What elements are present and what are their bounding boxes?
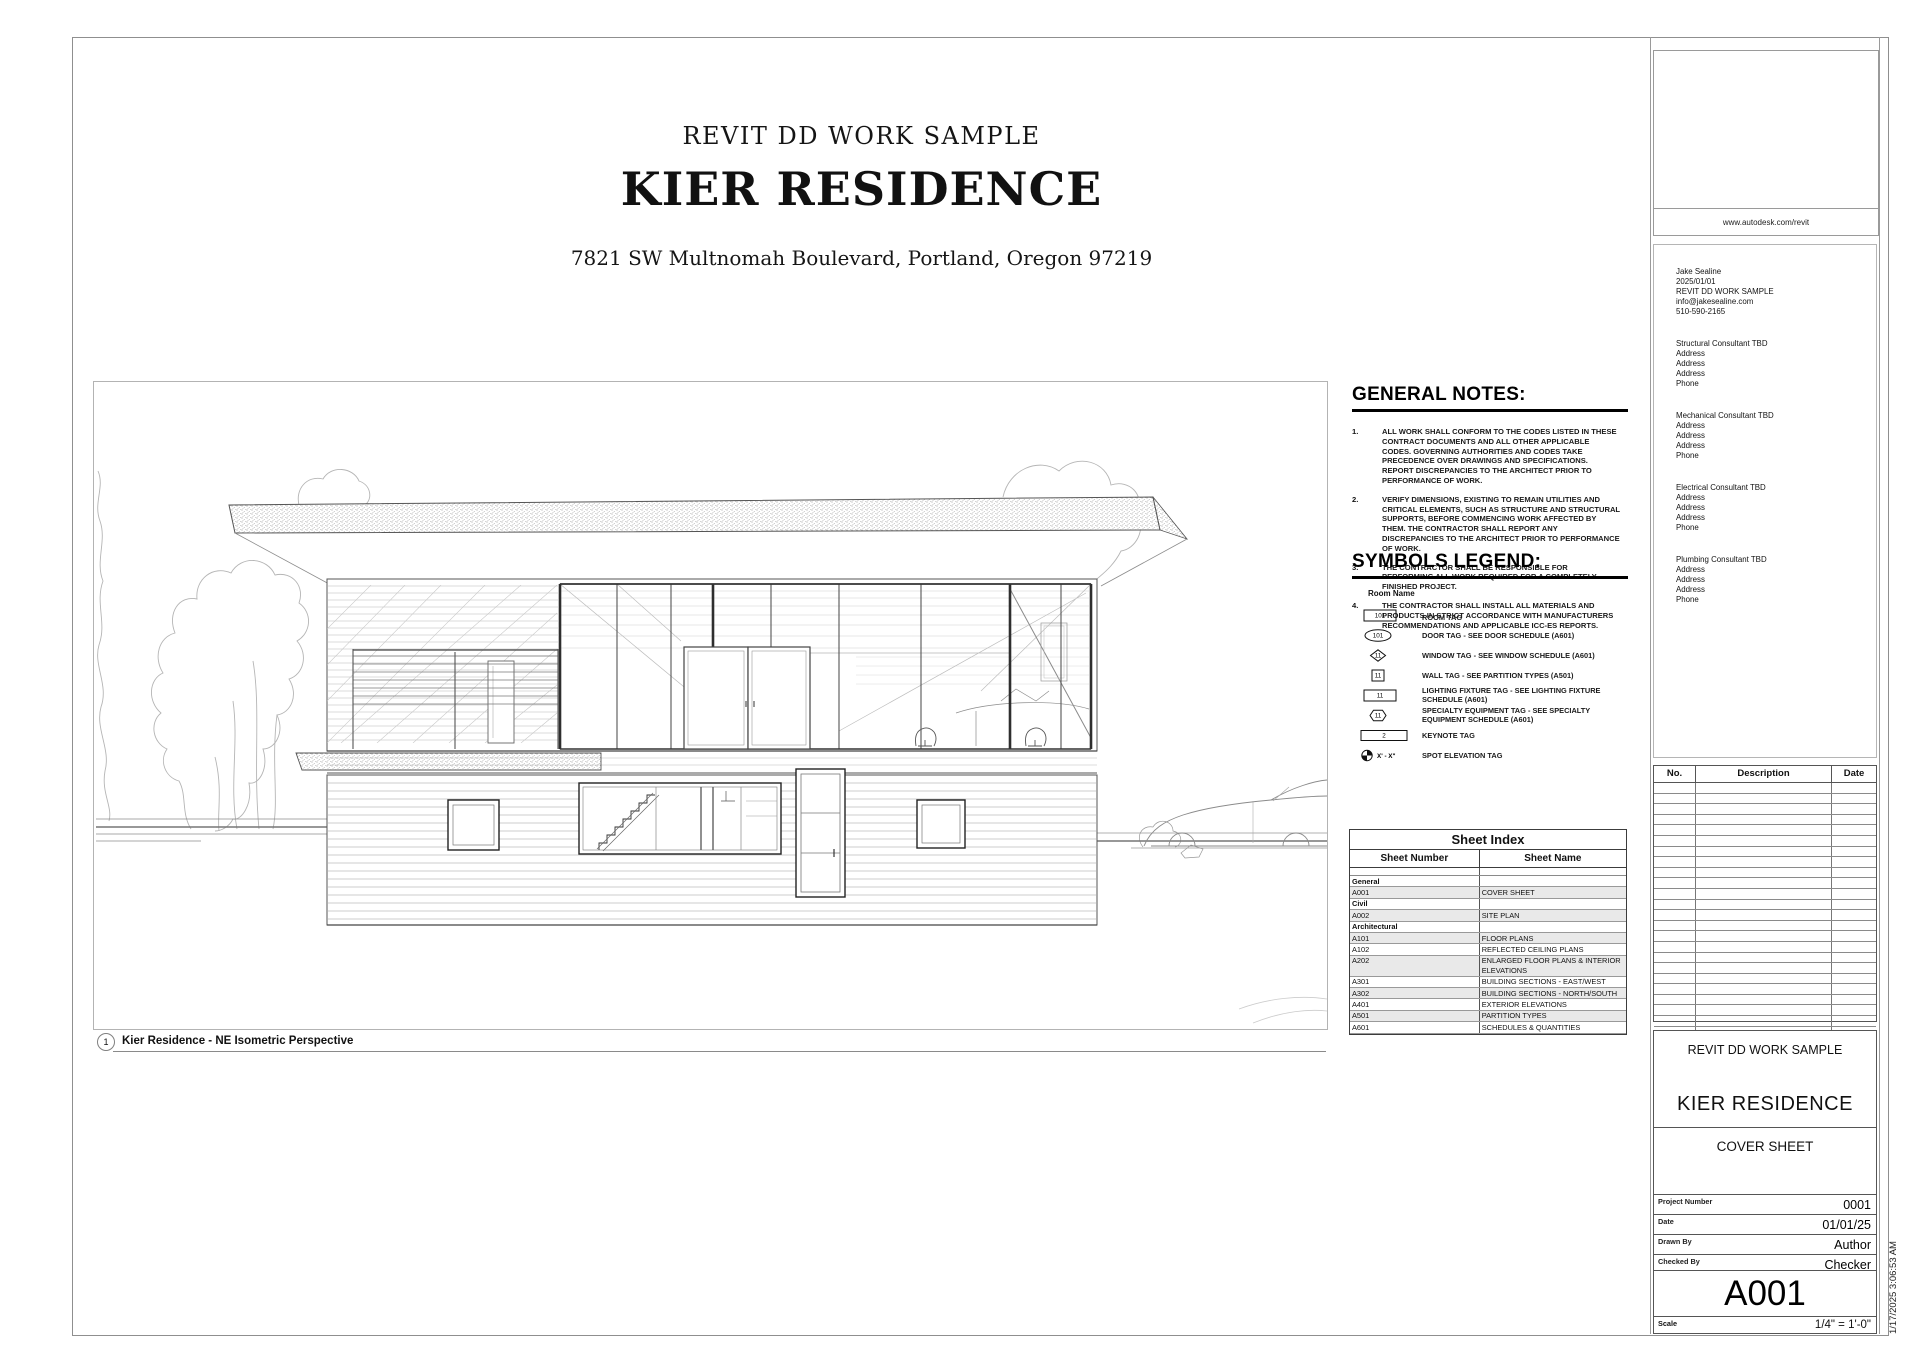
sheet-number-cell: A001: [1350, 887, 1480, 897]
svg-text:11: 11: [1377, 692, 1384, 699]
sheet-name-cell: REFLECTED CEILING PLANS: [1480, 944, 1626, 954]
sheet-index-row: A302BUILDING SECTIONS - NORTH/SOUTH: [1350, 988, 1626, 999]
legend-item: 101DOOR TAG - SEE DOOR SCHEDULE (A601): [1360, 625, 1628, 645]
title-block: REVIT DD WORK SAMPLE KIER RESIDENCE COVE…: [1653, 1030, 1877, 1334]
sheet-name-cell: PARTITION TYPES: [1480, 1011, 1626, 1021]
legend-item: 101ROOM TAG: [1360, 592, 1628, 625]
legend-label: DOOR TAG - SEE DOOR SCHEDULE (A601): [1422, 631, 1574, 640]
sheet-index-table: Sheet Index Sheet Number Sheet Name Gene…: [1349, 829, 1627, 1035]
consultant-line: Address: [1676, 493, 1876, 503]
sheet-name-cell: SCHEDULES & QUANTITIES: [1480, 1022, 1626, 1032]
sheet-index-spacer: [1350, 868, 1626, 876]
revision-table-header: No. Description Date: [1654, 766, 1876, 783]
consultant-line: Address: [1676, 431, 1876, 441]
sheet-index-row: A001COVER SHEET: [1350, 887, 1626, 898]
stair-window: [579, 783, 781, 854]
note-text: ALL WORK SHALL CONFORM TO THE CODES LIST…: [1382, 427, 1620, 486]
consultant-title: Electrical Consultant TBD: [1676, 483, 1876, 493]
revision-row: [1654, 953, 1876, 964]
balcony-slab: [296, 753, 601, 770]
symbols-legend-list: 101ROOM TAG101DOOR TAG - SEE DOOR SCHEDU…: [1360, 592, 1628, 765]
sheet-number-cell: A302: [1350, 988, 1480, 998]
sheet-number-column-header: Sheet Number: [1350, 850, 1480, 867]
titleblock-field: Project Number0001: [1654, 1194, 1876, 1214]
sheet-name-cell: BUILDING SECTIONS - NORTH/SOUTH: [1480, 988, 1626, 998]
sheet-index-row: A101FLOOR PLANS: [1350, 933, 1626, 944]
ellipse-tag-symbol: 101: [1360, 629, 1422, 642]
legend-label: SPOT ELEVATION TAG: [1422, 751, 1502, 760]
legend-item: 2KEYNOTE TAG: [1360, 725, 1628, 745]
window-right: [917, 800, 965, 848]
note-text: VERIFY DIMENSIONS, EXISTING TO REMAIN UT…: [1382, 495, 1620, 554]
cover-project-label: REVIT DD WORK SAMPLE: [93, 122, 1630, 150]
revision-row: [1654, 889, 1876, 900]
owner-info-line: REVIT DD WORK SAMPLE: [1676, 287, 1876, 297]
sheet-index-group-row: Architectural: [1350, 922, 1626, 933]
revision-row: [1654, 963, 1876, 974]
revision-row: [1654, 921, 1876, 932]
cover-address: 7821 SW Multnomah Boulevard, Portland, O…: [93, 246, 1630, 270]
detail-number-bubble: 1: [97, 1033, 115, 1051]
consultant-line: Phone: [1676, 379, 1876, 389]
autodesk-url: www.autodesk.com/revit: [1654, 208, 1878, 235]
field-label: Checked By: [1658, 1257, 1700, 1266]
legend-item: X' - X"SPOT ELEVATION TAG: [1360, 745, 1628, 765]
cover-project-name: KIER RESIDENCE: [93, 162, 1630, 216]
contact-block: Jake Sealine2025/01/01REVIT DD WORK SAMP…: [1653, 244, 1877, 758]
scale-row: Scale 1/4" = 1'-0": [1654, 1316, 1876, 1334]
field-label: Drawn By: [1658, 1237, 1692, 1246]
sheet-name-cell: [1480, 922, 1626, 932]
upper-storey: [327, 579, 1097, 751]
owner-info: Jake Sealine2025/01/01REVIT DD WORK SAMP…: [1676, 267, 1876, 317]
sheet-number-cell: A601: [1350, 1022, 1480, 1032]
titleblock-project-label: REVIT DD WORK SAMPLE: [1654, 1043, 1876, 1057]
field-value: 01/01/25: [1822, 1218, 1871, 1232]
consultant-block: Plumbing Consultant TBDAddressAddressAdd…: [1676, 555, 1876, 605]
sheet-number-cell: A301: [1350, 977, 1480, 987]
field-label: Date: [1658, 1217, 1674, 1226]
legend-item: 11WINDOW TAG - SEE WINDOW SCHEDULE (A601…: [1360, 645, 1628, 665]
sheet-number-area: A001: [1654, 1270, 1876, 1317]
consultant-line: Address: [1676, 513, 1876, 523]
legend-label: LIGHTING FIXTURE TAG - SEE LIGHTING FIXT…: [1422, 686, 1628, 704]
revision-row: [1654, 1016, 1876, 1027]
diamond-tag-symbol: 11: [1360, 649, 1422, 662]
revision-row: [1654, 931, 1876, 942]
titleblock-field: Date01/01/25: [1654, 1214, 1876, 1234]
sheet-name-cell: EXTERIOR ELEVATIONS: [1480, 999, 1626, 1009]
symbols-legend-heading: SYMBOLS LEGEND:: [1352, 551, 1628, 579]
sheet-name-cell: FLOOR PLANS: [1480, 933, 1626, 943]
sheet-index-header: Sheet Number Sheet Name: [1350, 850, 1626, 868]
svg-text:11: 11: [1375, 712, 1382, 719]
legend-label: ROOM TAG: [1422, 613, 1462, 622]
revision-row: [1654, 1005, 1876, 1016]
svg-text:101: 101: [1375, 613, 1386, 620]
revision-row: [1654, 815, 1876, 826]
car-outline: [1144, 780, 1327, 846]
owner-info-line: Jake Sealine: [1676, 267, 1876, 277]
sheet-number-cell: A401: [1350, 999, 1480, 1009]
revision-table-body: [1654, 783, 1876, 1037]
legend-label: KEYNOTE TAG: [1422, 731, 1475, 740]
sheet-index-body: GeneralA001COVER SHEETCivilA002SITE PLAN…: [1350, 876, 1626, 1034]
sheet-number-cell: A102: [1350, 944, 1480, 954]
sheet-index-group-row: Civil: [1350, 899, 1626, 910]
rect-tag-symbol: 101: [1360, 609, 1422, 622]
consultant-line: Address: [1676, 503, 1876, 513]
lower-storey: [327, 769, 1097, 925]
svg-text:101: 101: [1373, 632, 1384, 639]
isometric-perspective-drawing: [94, 382, 1327, 1029]
sheet-name-cell: [1480, 899, 1626, 909]
titleblock-fields: Project Number0001Date01/01/25Drawn ByAu…: [1654, 1194, 1876, 1274]
owner-info-line: info@jakesealine.com: [1676, 297, 1876, 307]
sheet-number-cell: A501: [1350, 1011, 1480, 1021]
note-number: 2.: [1352, 495, 1382, 554]
sheet-index-row: A401EXTERIOR ELEVATIONS: [1350, 999, 1626, 1010]
general-note: 2.VERIFY DIMENSIONS, EXISTING TO REMAIN …: [1352, 495, 1628, 554]
consultant-line: Address: [1676, 565, 1876, 575]
general-note: 1.ALL WORK SHALL CONFORM TO THE CODES LI…: [1352, 427, 1628, 486]
owner-info-line: 510-590-2165: [1676, 307, 1876, 317]
titleblock-divider: [1654, 1127, 1876, 1128]
hexagon-tag-symbol: 11: [1360, 709, 1422, 722]
sliding-doors: [684, 647, 810, 749]
consultant-line: Phone: [1676, 451, 1876, 461]
revision-description-header: Description: [1696, 766, 1832, 782]
consultant-block: Electrical Consultant TBDAddressAddressA…: [1676, 483, 1876, 533]
isometric-perspective-viewport: [93, 381, 1328, 1030]
consultant-line: Phone: [1676, 523, 1876, 533]
revision-row: [1654, 825, 1876, 836]
svg-text:11: 11: [1375, 672, 1382, 679]
field-value: Author: [1834, 1238, 1871, 1252]
terrain-lines: [1239, 997, 1327, 1023]
consultant-line: Address: [1676, 421, 1876, 431]
revision-row: [1654, 847, 1876, 858]
print-timestamp: 1/17/2025 3:06:53 AM: [1888, 1030, 1899, 1334]
legend-label: WINDOW TAG - SEE WINDOW SCHEDULE (A601): [1422, 651, 1595, 660]
revision-row: [1654, 995, 1876, 1006]
note-number: 1.: [1352, 427, 1382, 486]
revision-date-header: Date: [1832, 766, 1876, 782]
sheet-number-cell: A101: [1350, 933, 1480, 943]
keynote-tag-symbol: 2: [1360, 729, 1422, 742]
svg-text:2: 2: [1382, 732, 1386, 739]
field-value: 0001: [1843, 1198, 1871, 1212]
consultant-line: Address: [1676, 359, 1876, 369]
consultant-line: Phone: [1676, 595, 1876, 605]
general-notes-heading: GENERAL NOTES:: [1352, 384, 1628, 412]
consultant-block: Mechanical Consultant TBDAddressAddressA…: [1676, 411, 1876, 461]
sheet-number-cell: General: [1350, 876, 1480, 886]
square-tag-symbol: 11: [1360, 669, 1422, 682]
revision-row: [1654, 974, 1876, 985]
sheet-name-column-header: Sheet Name: [1480, 850, 1626, 867]
revision-row: [1654, 942, 1876, 953]
sheet-name-cell: COVER SHEET: [1480, 887, 1626, 897]
scale-label: Scale: [1658, 1319, 1677, 1328]
scale-value: 1/4" = 1'-0": [1815, 1319, 1871, 1331]
sheet-index-row: A202ENLARGED FLOOR PLANS & INTERIOR ELEV…: [1350, 956, 1626, 977]
sheet-index-group-row: General: [1350, 876, 1626, 887]
consultant-title: Mechanical Consultant TBD: [1676, 411, 1876, 421]
sheet-index-row: A501PARTITION TYPES: [1350, 1011, 1626, 1022]
spot-tag-symbol: X' - X": [1360, 749, 1422, 762]
sheet-index-row: A102REFLECTED CEILING PLANS: [1350, 944, 1626, 955]
logo-box: www.autodesk.com/revit: [1653, 50, 1879, 236]
sheet-number-cell: Architectural: [1350, 922, 1480, 932]
titleblock-project-name: KIER RESIDENCE: [1654, 1093, 1876, 1116]
legend-label: WALL TAG - SEE PARTITION TYPES (A501): [1422, 671, 1574, 680]
legend-item: 11WALL TAG - SEE PARTITION TYPES (A501): [1360, 665, 1628, 685]
revision-row: [1654, 878, 1876, 889]
window-left: [448, 800, 499, 850]
revision-row: [1654, 910, 1876, 921]
entry-door: [796, 769, 845, 897]
revision-row: [1654, 900, 1876, 911]
consultant-line: Address: [1676, 441, 1876, 451]
consultant-line: Address: [1676, 585, 1876, 595]
consultant-title: Structural Consultant TBD: [1676, 339, 1876, 349]
consultant-line: Address: [1676, 369, 1876, 379]
sheet-index-row: A301BUILDING SECTIONS - EAST/WEST: [1350, 977, 1626, 988]
legend-label: SPECIALTY EQUIPMENT TAG - SEE SPECIALTY …: [1422, 706, 1628, 724]
sheet-index-row: A601SCHEDULES & QUANTITIES: [1350, 1022, 1626, 1033]
sheet-name-cell: [1480, 876, 1626, 886]
owner-info-line: 2025/01/01: [1676, 277, 1876, 287]
titleblock-sheet-title: COVER SHEET: [1654, 1139, 1876, 1154]
consultant-block: Structural Consultant TBDAddressAddressA…: [1676, 339, 1876, 389]
legend-item: 11SPECIALTY EQUIPMENT TAG - SEE SPECIALT…: [1360, 705, 1628, 725]
revision-row: [1654, 857, 1876, 868]
sheet-name-cell: SITE PLAN: [1480, 910, 1626, 920]
roof-slab: [229, 497, 1187, 586]
consultant-line: Address: [1676, 349, 1876, 359]
sheet-name-cell: ENLARGED FLOOR PLANS & INTERIOR ELEVATIO…: [1480, 956, 1626, 976]
revision-row: [1654, 984, 1876, 995]
legend-item: 11LIGHTING FIXTURE TAG - SEE LIGHTING FI…: [1360, 685, 1628, 705]
viewport-title-line: [113, 1051, 1326, 1052]
field-label: Project Number: [1658, 1197, 1712, 1206]
svg-text:X' - X": X' - X": [1377, 752, 1395, 759]
consultant-line: Address: [1676, 575, 1876, 585]
sheet-number: A001: [1724, 1274, 1806, 1313]
sheet-index-title: Sheet Index: [1350, 830, 1626, 850]
mid-floor-slab: [296, 751, 1097, 775]
sheet-number-cell: Civil: [1350, 899, 1480, 909]
sheet-number-cell: A002: [1350, 910, 1480, 920]
rect-tag-symbol: 11: [1360, 689, 1422, 702]
sheet-index-row: A002SITE PLAN: [1350, 910, 1626, 921]
revision-row: [1654, 868, 1876, 879]
revision-no-header: No.: [1654, 766, 1696, 782]
titleblock-field: Drawn ByAuthor: [1654, 1234, 1876, 1254]
revision-row: [1654, 794, 1876, 805]
revision-row: [1654, 804, 1876, 815]
revision-row: [1654, 836, 1876, 847]
viewport-title: Kier Residence - NE Isometric Perspectiv…: [122, 1035, 353, 1047]
consultant-title: Plumbing Consultant TBD: [1676, 555, 1876, 565]
curtain-wall: [560, 584, 1091, 749]
sheet-name-cell: BUILDING SECTIONS - EAST/WEST: [1480, 977, 1626, 987]
svg-text:11: 11: [1375, 652, 1382, 659]
sheet-number-cell: A202: [1350, 956, 1480, 976]
revision-row: [1654, 783, 1876, 794]
revision-table: No. Description Date: [1653, 765, 1877, 1022]
